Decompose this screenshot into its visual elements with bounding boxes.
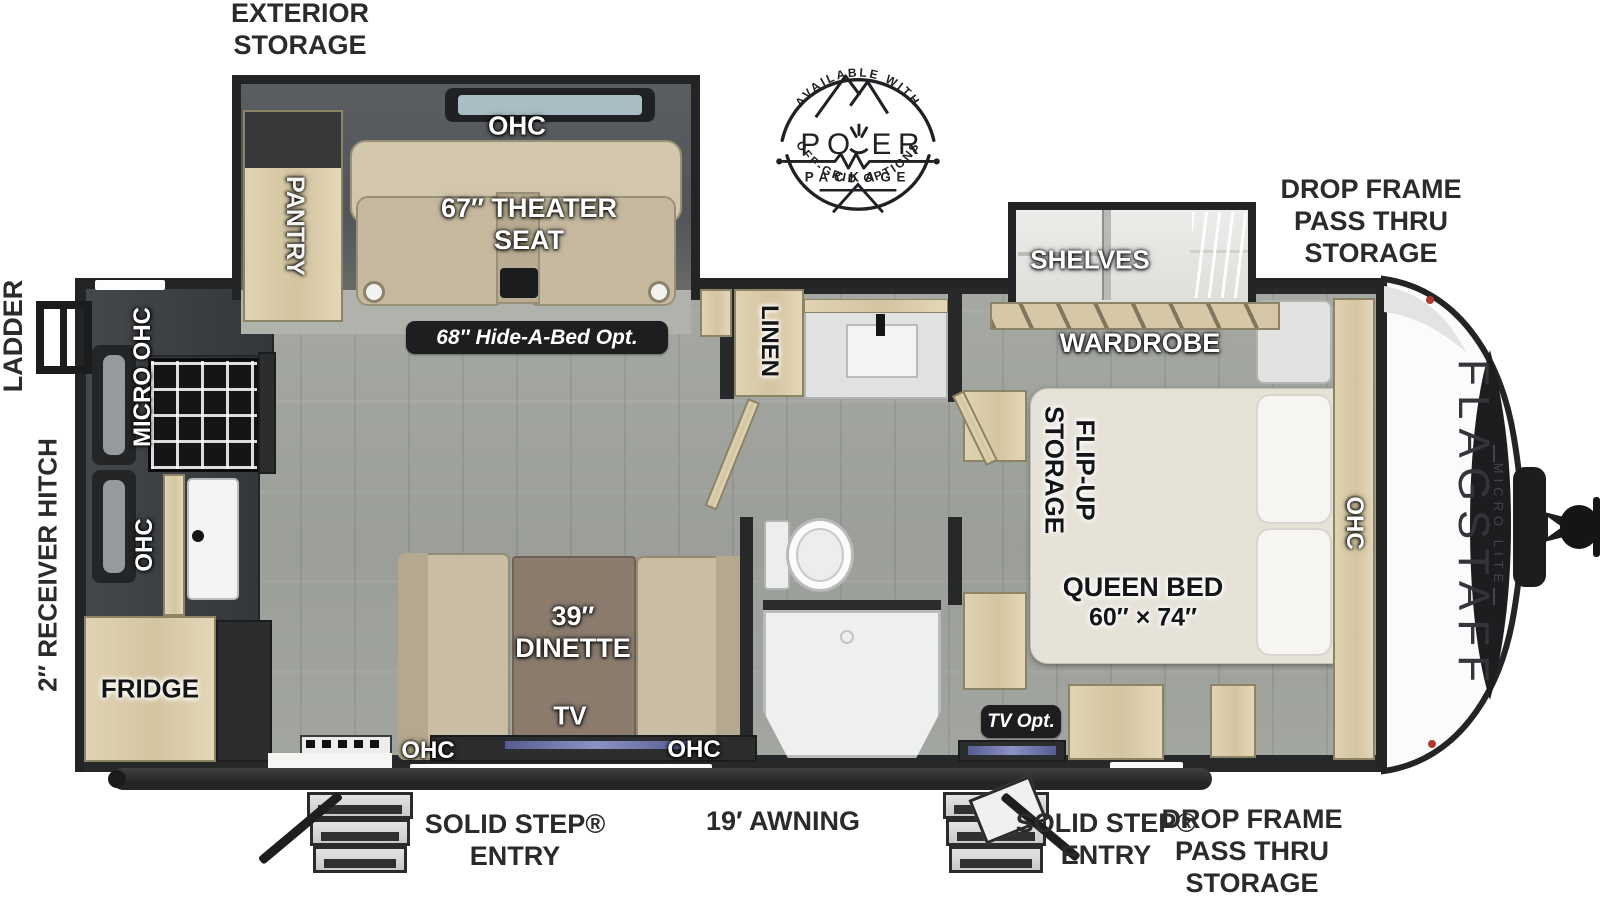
ohc-door-left-label: OHC xyxy=(401,737,454,765)
sun-rays xyxy=(851,125,866,137)
cap-marker-bottom xyxy=(1428,740,1436,748)
badge-power-right: ER xyxy=(871,128,926,161)
slide-ohc-label: OHC xyxy=(488,111,546,142)
bed-ohc-label: OHC xyxy=(1340,496,1368,549)
awning-roller xyxy=(112,768,1212,790)
hitch-bar xyxy=(1593,497,1600,557)
drop-frame-top-label: DROP FRAME PASS THRU STORAGE xyxy=(1280,174,1461,270)
pantry-label: PANTRY xyxy=(279,176,309,276)
ladder-rung-2 xyxy=(60,305,67,371)
cap-marker-top xyxy=(1426,296,1434,304)
jack-wheel xyxy=(1560,505,1598,549)
badge-top-text: AVAILABLE WITH xyxy=(792,65,923,109)
linen-label: LINEN xyxy=(755,305,783,377)
solid-step-left-label: SOLID STEP® ENTRY xyxy=(425,809,605,873)
theater-seat-label: 67″ THEATER SEAT xyxy=(441,193,617,257)
badge-top-textpath: AVAILABLE WITH xyxy=(792,65,923,109)
fridge-label: FRIDGE xyxy=(101,674,199,705)
brand-series: MICRO LITE xyxy=(1491,463,1506,587)
floorplan-canvas: FLAGSTAFF MICRO LITE xyxy=(0,0,1600,897)
hide-a-bed-label: 68″ Hide-A-Bed Opt. xyxy=(436,326,637,350)
step-tread xyxy=(310,819,410,846)
brand-model: FLAGSTAFF xyxy=(1449,359,1498,691)
badge-power-left: PO xyxy=(800,128,856,161)
awning-label: 19′ AWNING xyxy=(706,806,860,838)
theater-cupholder-right xyxy=(648,281,670,303)
queen-bed-size-label: 60″ × 74″ xyxy=(1089,603,1197,633)
tv-label: TV xyxy=(553,701,586,732)
receiver-hitch-label: 2″ RECEIVER HITCH xyxy=(33,438,64,692)
shelves-label: SHELVES xyxy=(1030,245,1149,276)
step-tread xyxy=(313,846,407,873)
awning-roller-endcap xyxy=(108,770,126,788)
sun-icon xyxy=(850,149,867,153)
ladder-rung-1 xyxy=(36,301,44,374)
tv-opt-label: TV Opt. xyxy=(987,711,1055,733)
micro-ohc-label: MICRO OHC xyxy=(129,307,157,447)
wardrobe-label: WARDROBE xyxy=(1060,328,1221,360)
divider-dot-right xyxy=(934,158,940,164)
ladder-rung-3 xyxy=(84,301,92,374)
theater-seat-console-tray xyxy=(500,268,538,298)
drop-frame-bottom-label: DROP FRAME PASS THRU STORAGE xyxy=(1161,804,1342,897)
flip-up-storage-label: FLIP-UP STORAGE xyxy=(1039,406,1100,534)
propane-cover xyxy=(1513,467,1546,587)
theater-cupholder-left xyxy=(363,281,385,303)
power-package-badge: AVAILABLE WITH OFF-GRID OPTIONS PO ER PA… xyxy=(762,28,954,220)
hide-a-bed-pill: 68″ Hide-A-Bed Opt. xyxy=(406,321,668,354)
queen-bed-label: QUEEN BED xyxy=(1063,572,1224,604)
exterior-storage-label: EXTERIOR STORAGE xyxy=(231,0,369,62)
kitchen-ohc-label: OHC xyxy=(131,518,159,571)
ohc-door-right-label: OHC xyxy=(667,736,720,764)
ladder-label: LADDER xyxy=(0,280,30,393)
dinette-label: 39″ DINETTE xyxy=(515,601,631,665)
divider-dot-left xyxy=(776,158,782,164)
tv-opt-pill: TV Opt. xyxy=(981,705,1061,738)
